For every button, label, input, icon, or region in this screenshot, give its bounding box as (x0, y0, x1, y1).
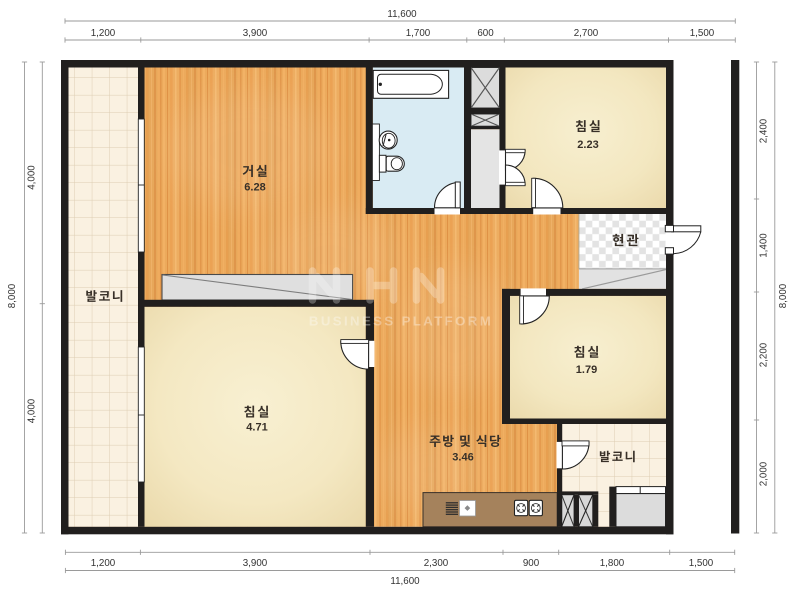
svg-text:3,900: 3,900 (243, 28, 268, 39)
svg-text:3,900: 3,900 (243, 558, 268, 569)
svg-text:1,800: 1,800 (600, 558, 625, 569)
svg-text:1,200: 1,200 (91, 28, 116, 39)
svg-text:2,000: 2,000 (759, 461, 770, 486)
svg-text:11,600: 11,600 (387, 9, 417, 20)
svg-text:6.28: 6.28 (244, 181, 265, 193)
svg-text:900: 900 (523, 558, 540, 569)
svg-text:11,600: 11,600 (390, 576, 420, 587)
svg-text:2,700: 2,700 (574, 28, 599, 39)
svg-text:2,400: 2,400 (759, 118, 770, 143)
svg-text:1.79: 1.79 (576, 364, 597, 376)
svg-text:8,000: 8,000 (7, 283, 18, 308)
svg-text:4.71: 4.71 (246, 421, 267, 433)
svg-text:1,700: 1,700 (406, 28, 431, 39)
svg-text:1,400: 1,400 (759, 233, 770, 258)
svg-text:8,000: 8,000 (778, 283, 789, 308)
svg-text:1,500: 1,500 (689, 558, 714, 569)
svg-text:3.46: 3.46 (452, 451, 473, 463)
svg-text:4,000: 4,000 (26, 165, 37, 190)
svg-text:1,200: 1,200 (91, 558, 116, 569)
svg-text:2,200: 2,200 (759, 342, 770, 367)
svg-text:2.23: 2.23 (577, 139, 598, 151)
svg-text:4,000: 4,000 (26, 398, 37, 423)
svg-text:2,300: 2,300 (424, 558, 449, 569)
svg-text:BUSINESS PLATFORM: BUSINESS PLATFORM (309, 314, 493, 329)
svg-text:1,500: 1,500 (690, 28, 715, 39)
svg-text:600: 600 (477, 28, 494, 39)
